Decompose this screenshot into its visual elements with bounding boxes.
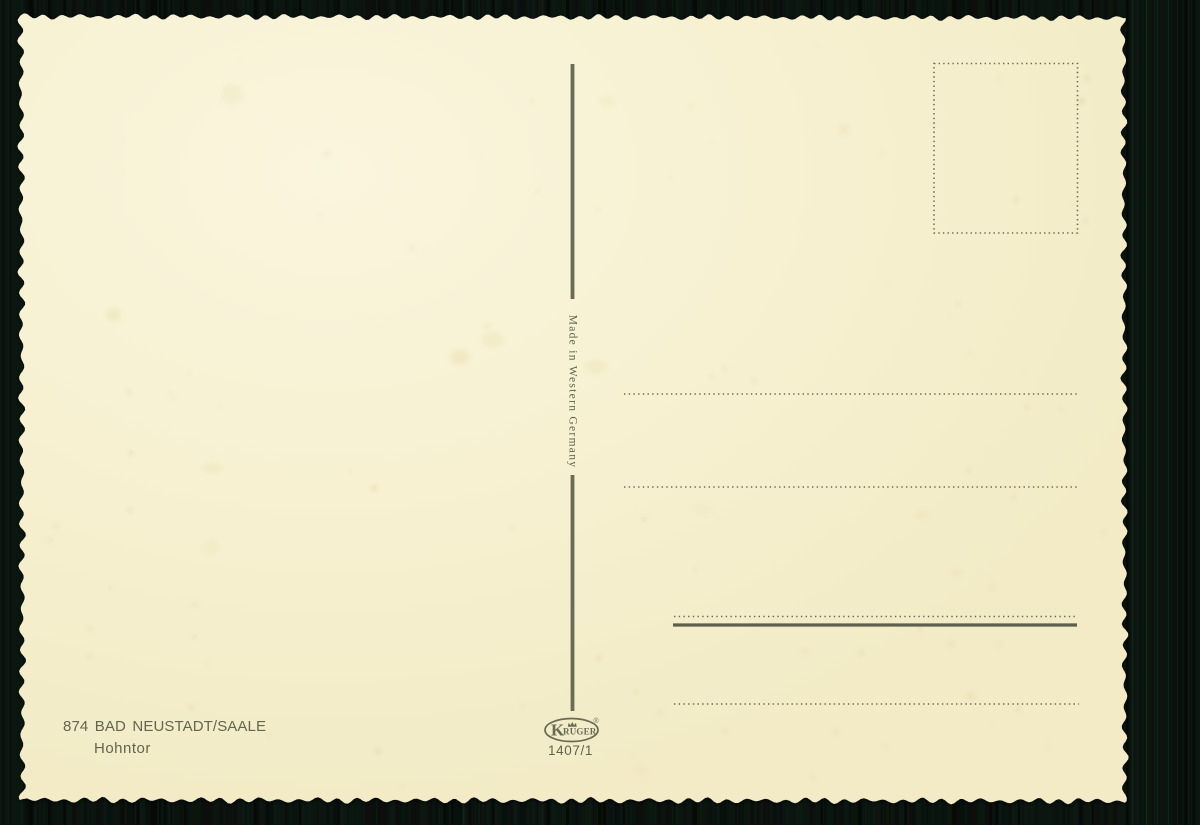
svg-text:Made in Western Germany: Made in Western Germany: [567, 315, 579, 469]
svg-text:RUGER: RUGER: [563, 727, 597, 737]
svg-text:Hohntor: Hohntor: [94, 740, 151, 757]
svg-text:®: ®: [594, 717, 600, 725]
svg-text:874 BAD NEUSTADT/SAALE: 874 BAD NEUSTADT/SAALE: [63, 718, 266, 735]
svg-text:1407/1: 1407/1: [548, 743, 593, 758]
